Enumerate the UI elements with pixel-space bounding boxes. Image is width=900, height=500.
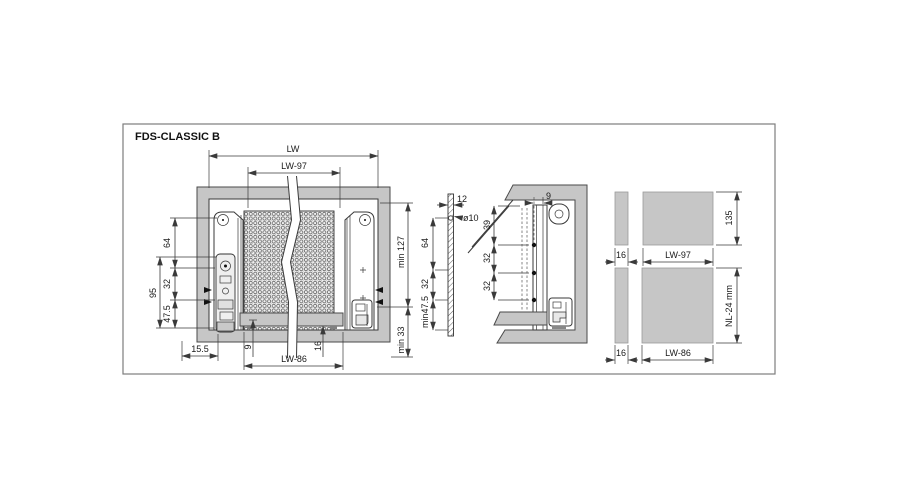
- mounting-hole-1: [532, 243, 536, 247]
- drawer-side-profile-left: [214, 212, 243, 332]
- drawer-bottom-side: [494, 312, 547, 325]
- bottom-panel-blank: [642, 268, 713, 343]
- dowel-hole: [449, 216, 453, 220]
- dim-hole-dia-label: ø10: [463, 213, 479, 223]
- drawing-canvas: FDS-CLASSIC B: [0, 0, 900, 500]
- back-panel-section: [448, 194, 454, 336]
- dim-47-5-label: 47.5: [162, 305, 172, 323]
- dim-39-label: 39: [482, 220, 492, 230]
- hook-bracket-side: [549, 298, 572, 329]
- dim-lw86-label: LW-86: [281, 354, 307, 364]
- dim-95-label: 95: [148, 288, 158, 298]
- technical-drawing-page: FDS-CLASSIC B: [0, 0, 900, 500]
- rail-curl: [549, 204, 569, 224]
- dim-bottom-lw86-label: LW-86: [665, 348, 691, 358]
- dim-64-label: 64: [162, 238, 172, 248]
- dim-top-lw97-label: LW-97: [665, 250, 691, 260]
- page-title: FDS-CLASSIC B: [135, 131, 220, 143]
- dim-32-lower-label: 32: [482, 281, 492, 291]
- dim-top-16-label: 16: [616, 250, 626, 260]
- dim-lw97-label: LW-97: [281, 161, 307, 171]
- dim-bp-min47-5-label: min47.5: [420, 296, 430, 328]
- dim-min127-label: min 127: [396, 236, 406, 268]
- mounting-hole-3: [532, 298, 536, 302]
- dim-lw-label: LW: [287, 144, 300, 154]
- lock-mechanism-left: [216, 254, 235, 332]
- back-panel-edge-top: [615, 192, 628, 245]
- dim-12-label: 12: [457, 194, 467, 204]
- back-panel-blank: [643, 192, 713, 245]
- dim-9-label: 9: [243, 344, 253, 349]
- hook-bracket-right: [352, 300, 372, 328]
- dim-nl24-label: NL-24 mm: [724, 285, 734, 327]
- drawer-side-profile-right: [345, 212, 374, 330]
- dim-bp-64-label: 64: [420, 238, 430, 248]
- foot-right: [330, 326, 337, 329]
- mounting-hole-2: [532, 271, 536, 275]
- bottom-panel-edge: [615, 268, 628, 343]
- dim-16-label: 16: [313, 341, 323, 351]
- dim-32-label: 32: [162, 279, 172, 289]
- dim-min33-label: min 33: [396, 326, 406, 353]
- dim-15-5-label: 15.5: [191, 344, 209, 354]
- dim-bottom-16-label: 16: [616, 348, 626, 358]
- dim-side-9-label: 9: [546, 191, 551, 201]
- dim-32-upper-label: 32: [482, 253, 492, 263]
- dim-bp-32-label: 32: [420, 279, 430, 289]
- dim-135-label: 135: [724, 210, 734, 225]
